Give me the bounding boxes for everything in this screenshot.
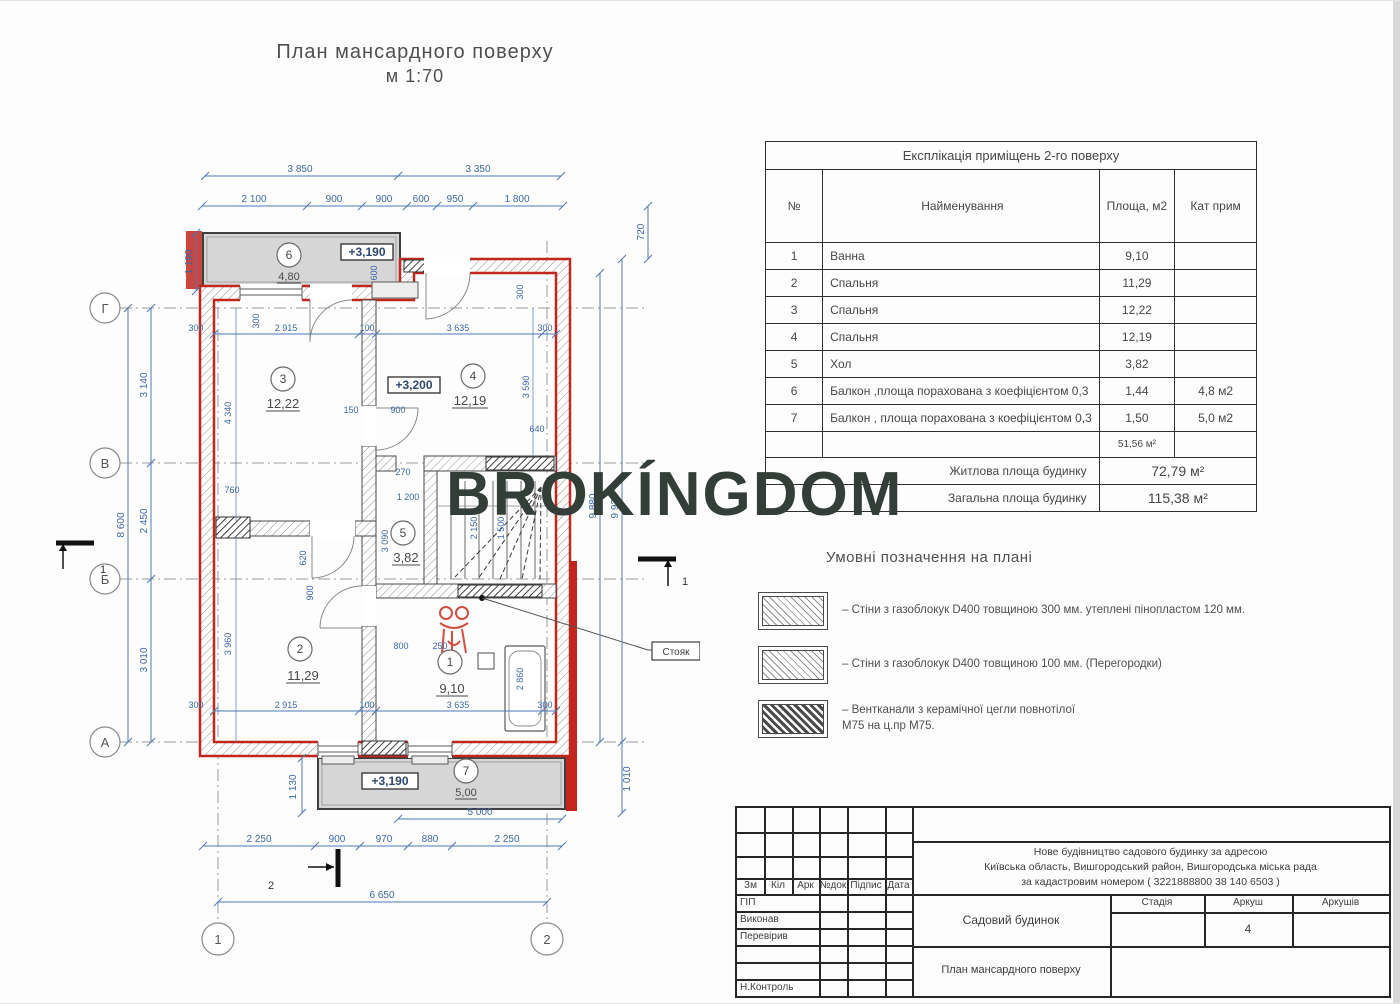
sheets-label: Аркушів [1292, 894, 1389, 912]
dim-label: 2 100 [241, 194, 266, 205]
room-number: 7 [463, 764, 470, 778]
room-number: 5 [400, 526, 407, 540]
dim-label: 2 250 [246, 834, 271, 845]
bathtub [478, 646, 545, 731]
cell-num: 2 [766, 270, 823, 297]
room-number: 2 [297, 642, 304, 656]
dim-label: 3 635 [447, 323, 470, 333]
divider [737, 856, 912, 858]
dim-label: 900 [390, 405, 405, 415]
dim-label: 5 000 [467, 807, 492, 818]
dim-label: 6 650 [369, 890, 394, 901]
dim-label: 760 [224, 485, 239, 495]
table-row: 2Спальня11,29 [766, 270, 1257, 297]
table-row: 3Спальня12,22 [766, 297, 1257, 324]
col-header-num: № [766, 170, 823, 243]
legend-item-line1: – Вентканали з керамічної цегли повнотіл… [842, 703, 1075, 719]
room-number: 3 [280, 372, 287, 386]
dim-label: 900 [376, 194, 393, 205]
divider [737, 962, 912, 964]
axis-label: А [101, 735, 110, 750]
cell-area: 9,10 [1099, 243, 1175, 270]
sig-row-label: Перевірив [737, 928, 822, 945]
drawing-sheet: План мансардного поверху м 1:70 [0, 0, 1400, 1004]
elevation-value: +3,190 [348, 245, 385, 259]
dim-label: 800 [393, 641, 408, 651]
axis-bubbles: Г В Б А 1 2 [90, 293, 563, 955]
cell-name: Балкон ,площа порахована з коефіцієнтом … [823, 378, 1100, 405]
section-number: 1 [100, 564, 106, 576]
dim-label: 270 [395, 467, 410, 477]
cell-note [1175, 351, 1257, 378]
sig-col-header: Арк [792, 878, 819, 894]
vent-channel-swatch-icon [758, 700, 828, 738]
dim-label: 620 [298, 550, 308, 565]
sig-row-label: ГІП [737, 894, 822, 911]
cell-area: 11,29 [1099, 270, 1175, 297]
dim-label: 100 [359, 700, 374, 710]
cell-note [1175, 324, 1257, 351]
col-header-note: Кат прим [1175, 170, 1257, 243]
scan-edge [1393, 1, 1400, 1003]
dim-label: 880 [422, 834, 439, 845]
dim-label: 300 [515, 284, 525, 299]
dim-label: 250 [432, 641, 447, 651]
dim-label: 8 600 [116, 512, 127, 537]
dim-label: 300 [188, 700, 203, 710]
cell-note [1175, 243, 1257, 270]
sheet-title: План мансардного поверху [912, 946, 1110, 996]
sig-col-header: №док [819, 878, 847, 894]
sheet-number: 4 [1204, 912, 1292, 946]
dim-label: 3 010 [139, 647, 150, 672]
room-area: 3,82 [393, 550, 418, 565]
section-number: 1 [682, 576, 688, 588]
dim-label: 4 340 [223, 402, 233, 425]
cell-num: 3 [766, 297, 823, 324]
address-line: Нове будівництво садового будинку за адр… [1034, 845, 1267, 860]
divider [737, 945, 912, 947]
wall-300-swatch-icon [758, 592, 828, 630]
cell-name: Балкон , площа порахована з коефіцієнтом… [823, 405, 1100, 432]
legend-item: – Вентканали з керамічної цегли повнотіл… [758, 700, 1298, 738]
cell-num: 4 [766, 324, 823, 351]
room-number: 4 [470, 369, 477, 383]
cell-empty [823, 432, 1100, 458]
table-row: 5Хол3,82 [766, 351, 1257, 378]
project-address: Нове будівництво садового будинку за адр… [912, 841, 1389, 894]
sig-col-header: Зм [737, 878, 764, 894]
drawing-title-scale: м 1:70 [215, 65, 615, 88]
dim-label: 600 [369, 265, 379, 280]
col-header-area: Площа, м2 [1099, 170, 1175, 243]
dim-label: 300 [188, 323, 203, 333]
dim-label: 3 850 [287, 164, 312, 175]
dim-label: 970 [376, 834, 393, 845]
dim-label: 950 [447, 194, 464, 205]
legend-item: – Стіни з газоблокук D400 товщиною 100 м… [758, 646, 1298, 684]
dim-label: 900 [329, 834, 346, 845]
dim-label: 3 090 [380, 530, 390, 553]
axis-label: 1 [214, 932, 221, 947]
room-area: 4,80 [278, 271, 299, 283]
sig-col-header: Кіл [764, 878, 792, 894]
cell-area: 3,82 [1099, 351, 1175, 378]
cell-area: 12,22 [1099, 297, 1175, 324]
cell-num: 5 [766, 351, 823, 378]
dim-label: 900 [326, 194, 343, 205]
sheet-label: Аркуш [1204, 894, 1292, 912]
dim-label: 640 [529, 424, 544, 434]
dim-label: 3 590 [521, 376, 531, 399]
divider [885, 808, 887, 996]
dim-label: 600 [413, 194, 430, 205]
drawing-title: План мансардного поверху м 1:70 [215, 39, 615, 88]
table-title: Експлікація приміщень 2-го поверху [766, 142, 1257, 170]
divider [847, 808, 849, 996]
axis-label: 2 [543, 932, 550, 947]
legend-heading: Умовні позначення на плані [826, 549, 1298, 566]
dim-label: 900 [305, 585, 315, 600]
table-row: 4Спальня12,19 [766, 324, 1257, 351]
dim-label: 1 010 [622, 766, 633, 791]
summary-value: 115,38 м² [1099, 485, 1256, 512]
cell-name: Спальня [823, 297, 1100, 324]
table-row: 1Ванна9,10 [766, 243, 1257, 270]
room-area: 12,22 [267, 396, 300, 411]
dim-label: 1 190 [184, 249, 195, 274]
table-row: 6Балкон ,площа порахована з коефіцієнтом… [766, 378, 1257, 405]
dim-label: 3 140 [139, 372, 150, 397]
sig-col-header: Підпис [847, 878, 885, 894]
dim-label: 3 960 [223, 633, 233, 656]
watermark: BROKÍNGDOM [446, 459, 903, 530]
dim-label: 150 [343, 405, 358, 415]
dim-label: 2 860 [515, 668, 525, 691]
cell-area: 1,44 [1099, 378, 1175, 405]
sig-col-header: Дата [885, 878, 912, 894]
dim-label: 300 [537, 323, 552, 333]
cell-num: 6 [766, 378, 823, 405]
legend-item-text: – Вентканали з керамічної цегли повнотіл… [842, 703, 1075, 734]
legend-item-line2: М75 на ц.пр М75. [842, 719, 1075, 735]
divider [737, 832, 912, 834]
floor-plan: Стояк [40, 131, 700, 961]
section-number: 2 [268, 880, 274, 892]
cell-num: 7 [766, 405, 823, 432]
cell-note [1175, 297, 1257, 324]
drawing-title-line1: План мансардного поверху [215, 39, 615, 65]
wall-100-swatch-icon [758, 646, 828, 684]
axis-label: Г [101, 301, 108, 316]
dim-label: 1 800 [504, 194, 529, 205]
cell-note: 4,8 м2 [1175, 378, 1257, 405]
col-header-name: Найменування [823, 170, 1100, 243]
dim-label: 300 [537, 700, 552, 710]
cell-name: Спальня [823, 270, 1100, 297]
dim-label: 3 350 [465, 164, 490, 175]
cell-empty [1175, 432, 1257, 458]
dim-label: 300 [251, 313, 261, 328]
elevation-value: +3,200 [395, 378, 432, 392]
room-number: 1 [447, 655, 454, 669]
dim-label: 100 [359, 323, 374, 333]
room-area: 5,00 [455, 787, 476, 799]
dim-label: 720 [636, 223, 647, 240]
cell-note [1175, 270, 1257, 297]
elevation-value: +3,190 [371, 774, 408, 788]
explication-body: 1Ванна9,102Спальня11,293Спальня12,224Спа… [766, 243, 1257, 432]
room-area: 11,29 [287, 668, 319, 683]
cell-num: 1 [766, 243, 823, 270]
legend: Умовні позначення на плані – Стіни з газ… [758, 549, 1298, 738]
legend-item: – Стіни з газоблокук D400 товщиною 300 м… [758, 592, 1298, 630]
object-name: Садовий будинок [912, 894, 1110, 946]
axis-label: В [101, 456, 110, 471]
dim-label: 3 635 [447, 700, 470, 710]
balcony-7 [318, 758, 565, 809]
address-line: Київська область, Вишгородський район, В… [984, 860, 1317, 875]
sig-row-label: Н.Контроль [737, 979, 822, 996]
cell-area: 12,19 [1099, 324, 1175, 351]
cell-empty [766, 432, 823, 458]
room-area: 9,10 [439, 681, 464, 696]
address-line: за кадастровим номером ( 3221888800 38 1… [1021, 875, 1280, 890]
riser-label: Стояк [662, 647, 690, 658]
sig-row-label: Виконав [737, 911, 822, 928]
dim-label: 1 200 [397, 492, 420, 502]
cell-note: 5,0 м2 [1175, 405, 1257, 432]
subtotal-area: 51,56 м² [1099, 432, 1175, 458]
dim-label: 1 130 [288, 774, 299, 799]
dim-label: 2 450 [139, 508, 150, 533]
stage-label: Стадія [1110, 894, 1204, 912]
cell-area: 1,50 [1099, 405, 1175, 432]
explication-table: Експлікація приміщень 2-го поверху № Най… [765, 141, 1257, 512]
summary-value: 72,79 м² [1099, 458, 1256, 485]
table-row: 7Балкон , площа порахована з коефіцієнто… [766, 405, 1257, 432]
cell-name: Хол [823, 351, 1100, 378]
dim-label: 2 915 [275, 700, 298, 710]
dim-label: 2 250 [494, 834, 519, 845]
dim-label: 2 915 [275, 323, 298, 333]
legend-item-text: – Стіни з газоблокук D400 товщиною 300 м… [842, 603, 1245, 619]
title-block: Зм Кіл Арк №док Підпис Дата ГІП Виконав … [735, 806, 1391, 998]
cell-name: Спальня [823, 324, 1100, 351]
room-number: 6 [286, 248, 293, 262]
cell-name: Ванна [823, 243, 1100, 270]
legend-item-text: – Стіни з газоблокук D400 товщиною 100 м… [842, 657, 1162, 673]
room-area: 12,19 [454, 393, 487, 408]
